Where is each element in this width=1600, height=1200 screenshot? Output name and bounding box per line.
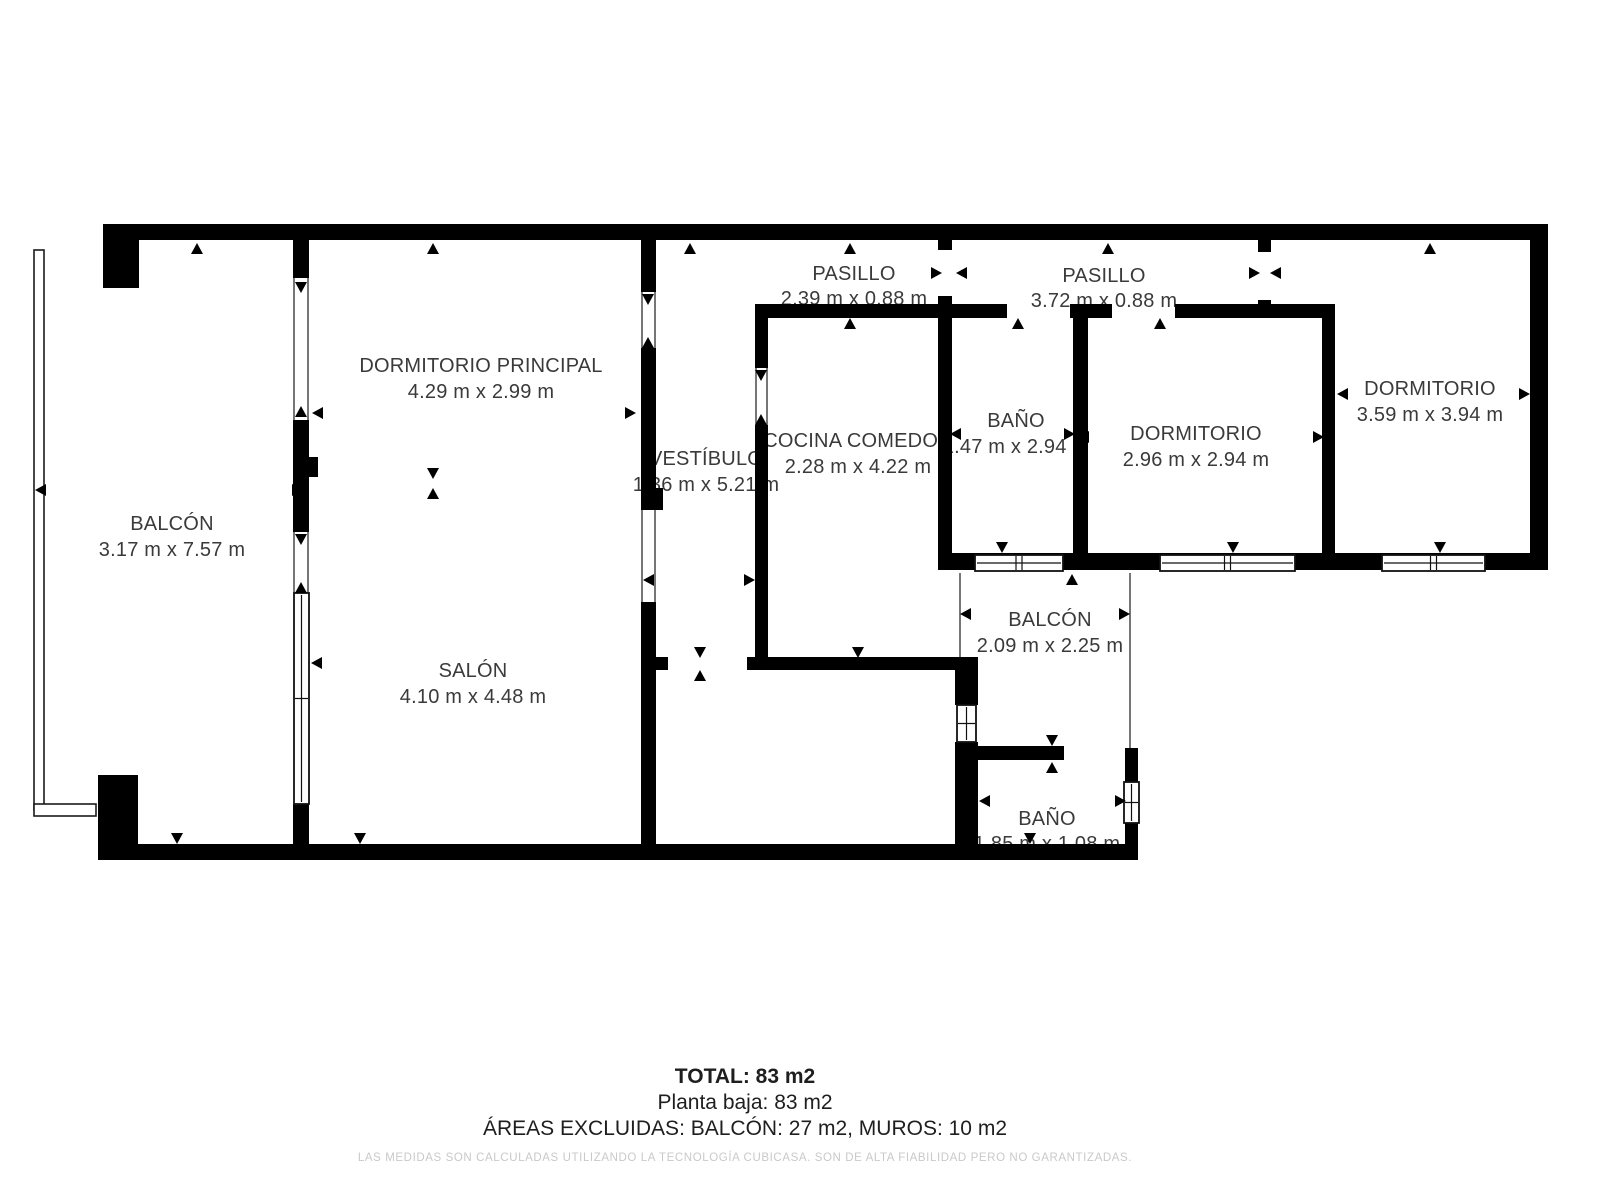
room-label-pasillo-izq: PASILLO [812,263,895,285]
tick-marker [312,407,323,419]
tick-marker [1102,243,1114,254]
tick-marker [1227,542,1239,553]
tick-marker [956,267,967,279]
wall-segment [1322,304,1335,568]
door-opening-lines [294,278,1130,748]
wall-segment [1258,238,1271,252]
wall-segment [1125,823,1138,860]
tick-marker [684,243,696,254]
room-label-vestibulo: VESTÍBULO [649,447,763,470]
wall-segment [98,844,1138,860]
wall-segment [1530,224,1548,570]
tick-marker [1434,542,1446,553]
tick-marker [1519,388,1530,400]
walls [98,224,1548,860]
room-label-dormitorio-principal: DORMITORIO PRINCIPAL [359,355,602,377]
wall-segment [1073,304,1088,557]
wall-segment [293,224,309,278]
tick-marker [295,582,307,593]
tick-marker [852,647,864,658]
tick-marker [427,243,439,254]
room-label-salon: SALÓN [439,659,508,682]
tick-marker [694,647,706,658]
room-label-dormitorio-medio: DORMITORIO [1130,423,1262,445]
tick-marker [1337,388,1348,400]
tick-marker [960,608,971,620]
tick-marker [171,833,183,844]
wall-segment [1125,748,1138,782]
wall-segment [641,602,656,860]
tick-marker [295,406,307,417]
tick-marker [191,243,203,254]
tick-marker [625,407,636,419]
tick-marker [844,243,856,254]
tick-marker [427,488,439,499]
tick-marker [931,267,942,279]
room-dims-balcon-left: 3.17 m x 7.57 m [99,539,245,561]
railing [34,250,44,810]
tick-marker [354,833,366,844]
tick-marker [1270,267,1281,279]
wall-segment [103,224,139,288]
tick-marker [643,574,654,586]
wall-segment [955,657,978,705]
room-dims-cocina-comedor: 2.28 m x 4.22 m [785,456,931,478]
wall-segment [293,804,309,860]
tick-marker [844,318,856,329]
tick-marker [1249,267,1260,279]
tick-marker [755,370,767,381]
wall-segment [938,296,952,557]
wall-segment [1258,300,1271,318]
summary-total: TOTAL: 83 m2 [0,1064,1490,1090]
wall-segment [641,240,656,292]
tick-marker [1119,608,1130,620]
wall-segment [309,457,318,477]
room-label-balcon-inf: BALCÓN [1008,608,1091,631]
room-label-bano-sup: BAÑO [987,408,1044,432]
room-label-balcon-left: BALCÓN [130,512,213,535]
room-dims-balcon-inf: 2.09 m x 2.25 m [977,635,1123,657]
summary-excluded: ÁREAS EXCLUIDAS: BALCÓN: 27 m2, MUROS: 1… [0,1116,1490,1142]
wall-segment [293,420,309,532]
room-dims-bano-sup: 1.47 m x 2.94 m [943,436,1089,458]
railing [34,804,96,816]
wall-segment [747,657,963,670]
wall-segment [103,224,1548,240]
tick-marker [1046,762,1058,773]
tick-marker [1066,574,1078,585]
room-label-cocina-comedor: COCINA COMEDOR [763,430,952,452]
room-label-pasillo-der: PASILLO [1062,265,1145,287]
tick-marker [979,795,990,807]
tick-marker [1012,318,1024,329]
tick-marker [694,670,706,681]
tick-marker [311,657,322,669]
tick-marker [427,468,439,479]
tick-marker [1154,318,1166,329]
wall-segment [968,746,1064,760]
room-label-dormitorio-der: DORMITORIO [1364,378,1496,400]
summary-disclaimer: LAS MEDIDAS SON CALCULADAS UTILIZANDO LA… [0,1152,1490,1164]
wall-segment [755,425,768,670]
room-label-bano-inf: BAÑO [1018,806,1075,830]
wall-segment [1175,304,1332,318]
tick-marker [744,574,755,586]
tick-marker [642,337,654,348]
room-dims-dormitorio-der: 3.59 m x 3.94 m [1357,404,1503,426]
balcony-railings [34,250,96,816]
room-dims-dormitorio-principal: 4.29 m x 2.99 m [408,381,554,403]
wall-segment [758,304,948,318]
floorplan-svg: BALCÓN 3.17 m x 7.57 m DORMITORIO PRINCI… [0,0,1600,1200]
wall-segment [652,657,668,670]
tick-marker [996,542,1008,553]
tick-marker [755,414,767,425]
summary-floor: Planta baja: 83 m2 [0,1090,1490,1116]
tick-marker [295,534,307,545]
tick-marker [1424,243,1436,254]
summary-block: TOTAL: 83 m2 Planta baja: 83 m2 ÁREAS EX… [0,1064,1490,1164]
wall-segment [938,238,952,250]
room-dims-dormitorio-medio: 2.96 m x 2.94 m [1123,449,1269,471]
tick-marker [642,294,654,305]
room-dims-salon: 4.10 m x 4.48 m [400,686,546,708]
measurement-markers [35,243,1530,844]
tick-marker [295,282,307,293]
wall-segment [641,488,663,510]
tick-marker [1046,735,1058,746]
wall-segment [945,304,1007,318]
wall-segment [641,348,656,510]
floorplan: BALCÓN 3.17 m x 7.57 m DORMITORIO PRINCI… [0,0,1600,1200]
